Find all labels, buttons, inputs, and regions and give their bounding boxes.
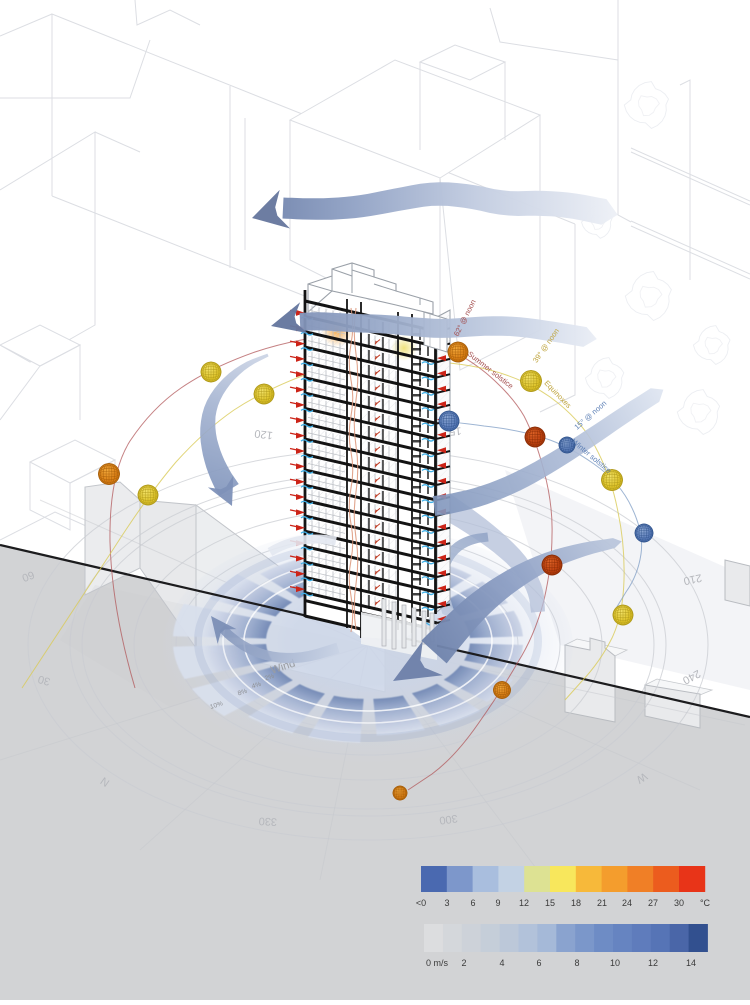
svg-text:12: 12 <box>519 898 529 908</box>
svg-text:4: 4 <box>499 958 504 968</box>
svg-text:6: 6 <box>470 898 475 908</box>
svg-text:27: 27 <box>648 898 658 908</box>
svg-text:°C: °C <box>700 898 711 908</box>
svg-text:24: 24 <box>622 898 632 908</box>
svg-text:12: 12 <box>648 958 658 968</box>
svg-text:3: 3 <box>444 898 449 908</box>
svg-text:Summer solstice: Summer solstice <box>466 349 515 390</box>
svg-text:6: 6 <box>536 958 541 968</box>
svg-text:<0: <0 <box>416 898 426 908</box>
svg-text:18: 18 <box>571 898 581 908</box>
svg-text:21: 21 <box>597 898 607 908</box>
svg-text:8: 8 <box>574 958 579 968</box>
svg-text:330: 330 <box>258 815 277 828</box>
svg-text:2: 2 <box>461 958 466 968</box>
svg-text:30: 30 <box>674 898 684 908</box>
svg-text:10: 10 <box>610 958 620 968</box>
svg-text:9: 9 <box>495 898 500 908</box>
svg-text:120: 120 <box>254 427 274 441</box>
svg-text:15: 15 <box>545 898 555 908</box>
svg-text:0 m/s: 0 m/s <box>426 958 449 968</box>
svg-text:300: 300 <box>438 812 458 826</box>
svg-text:14: 14 <box>686 958 696 968</box>
